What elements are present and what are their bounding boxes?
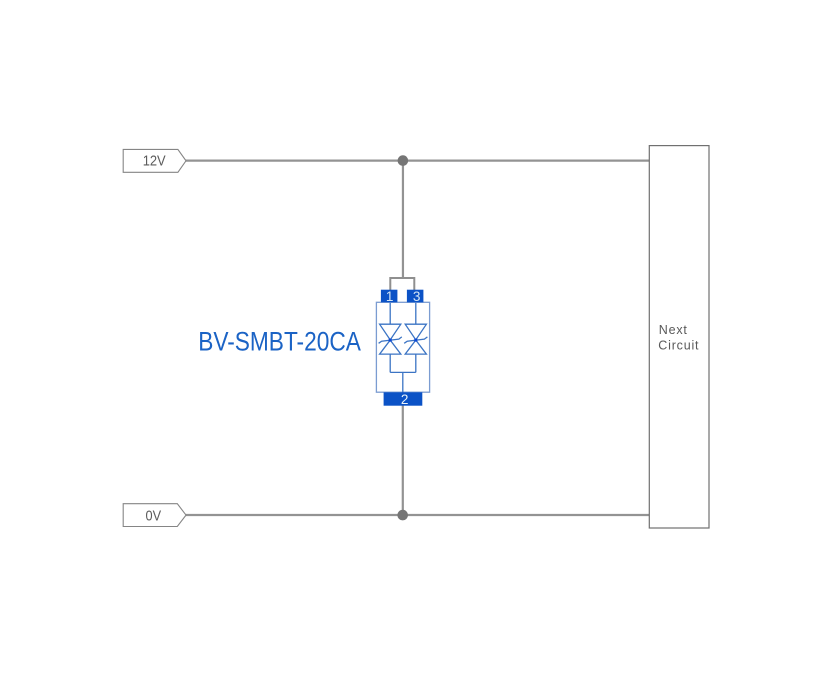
svg-text:0V: 0V (146, 508, 162, 525)
svg-text:BV-SMBT-20CA: BV-SMBT-20CA (198, 327, 361, 357)
svg-text:Circuit: Circuit (658, 339, 699, 353)
svg-text:12V: 12V (143, 153, 166, 170)
svg-text:2: 2 (401, 392, 409, 407)
svg-text:1: 1 (386, 289, 394, 304)
svg-text:3: 3 (413, 289, 421, 304)
svg-text:Next: Next (659, 323, 688, 337)
